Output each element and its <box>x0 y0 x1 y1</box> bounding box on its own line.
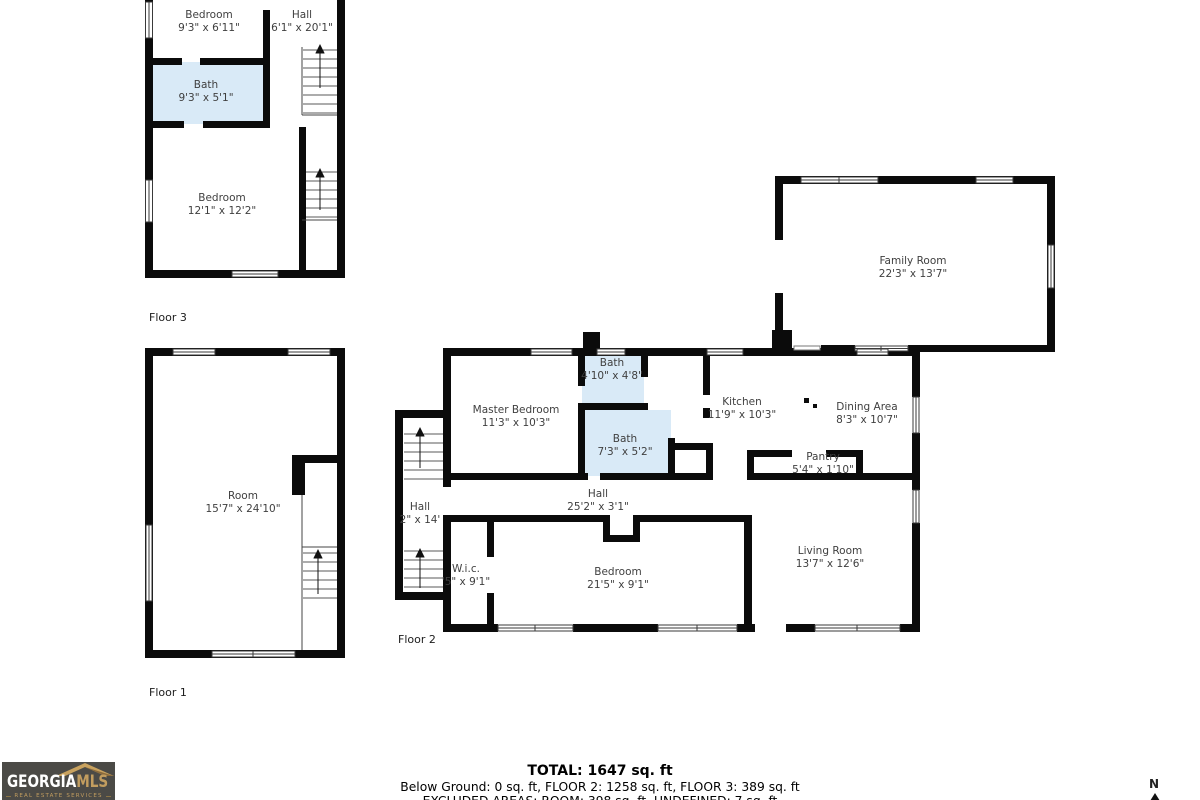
room-dims: 7'3" x 5'2" <box>597 446 652 459</box>
room-label-f2-wic: W.i.c. '5" x 9'1" <box>442 563 490 589</box>
room-label-f2-bath-mid: Bath 7'3" x 5'2" <box>597 433 652 459</box>
room-label-f2-bath-top: Bath 4'10" x 4'8" <box>581 357 643 383</box>
room-label-f2-hall-main: Hall 25'2" x 3'1" <box>567 488 629 514</box>
room-label-f2-hall-stairs: Hall 2" x 14' <box>400 501 441 527</box>
room-label-f3-bedroom-top: Bedroom 9'3" x 6'11" <box>178 9 240 35</box>
room-label-f2-living-room: Living Room 13'7" x 12'6" <box>796 545 864 571</box>
room-label-f2-pantry: Pantry 5'4" x 1'10" <box>792 451 854 477</box>
room-name: Bath <box>597 433 652 446</box>
logo-text-mls: MLS <box>76 772 108 792</box>
room-name: Bedroom <box>178 9 240 22</box>
room-dims: 11'9" x 10'3" <box>708 409 776 422</box>
summary-excluded-areas: EXCLUDED AREAS: ROOM: 398 sq. ft, UNDEFI… <box>0 794 1200 800</box>
room-name: Dining Area <box>836 401 898 414</box>
room-name: Family Room <box>879 255 947 268</box>
floorplan-drawing <box>0 0 1200 800</box>
room-name: Hall <box>271 9 333 22</box>
floor-label-2: Floor 2 <box>398 633 436 646</box>
room-name: Master Bedroom <box>473 404 560 417</box>
room-dims: 12'1" x 12'2" <box>188 205 256 218</box>
room-dims: 15'7" x 24'10" <box>205 503 280 516</box>
room-dims: 13'7" x 12'6" <box>796 558 864 571</box>
floor-label-1: Floor 1 <box>149 686 187 699</box>
tagline-rule-right <box>106 796 111 797</box>
room-dims: 9'3" x 5'1" <box>178 92 233 105</box>
logo-wordmark: GEORGIAMLS <box>7 772 108 792</box>
summary-floor-areas: Below Ground: 0 sq. ft, FLOOR 2: 1258 sq… <box>0 780 1200 794</box>
room-name: Bath <box>178 79 233 92</box>
room-label-f3-bath: Bath 9'3" x 5'1" <box>178 79 233 105</box>
summary-total: TOTAL: 1647 sq. ft <box>0 763 1200 779</box>
room-dims: 22'3" x 13'7" <box>879 268 947 281</box>
room-label-f2-master-bedroom: Master Bedroom 11'3" x 10'3" <box>473 404 560 430</box>
room-name: Living Room <box>796 545 864 558</box>
room-label-f1-room: Room 15'7" x 24'10" <box>205 490 280 516</box>
room-name: Hall <box>567 488 629 501</box>
room-label-f3-hall: Hall 6'1" x 20'1" <box>271 9 333 35</box>
room-dims: '5" x 9'1" <box>442 576 490 589</box>
room-label-f3-bedroom-main: Bedroom 12'1" x 12'2" <box>188 192 256 218</box>
room-dims: 5'4" x 1'10" <box>792 464 854 477</box>
room-name: Kitchen <box>708 396 776 409</box>
room-dims: 6'1" x 20'1" <box>271 22 333 35</box>
floor-label-3: Floor 3 <box>149 311 187 324</box>
logo-tagline: REAL ESTATE SERVICES <box>11 793 105 799</box>
north-indicator: N <box>1149 777 1159 791</box>
room-name: Room <box>205 490 280 503</box>
room-dims: 8'3" x 10'7" <box>836 414 898 427</box>
room-name: Bath <box>581 357 643 370</box>
room-dims: 25'2" x 3'1" <box>567 501 629 514</box>
room-name: Pantry <box>792 451 854 464</box>
room-name: Bedroom <box>188 192 256 205</box>
north-arrow-icon <box>1150 793 1160 800</box>
logo-text-georgia: GEORGIA <box>7 772 76 792</box>
room-name: Hall <box>400 501 441 514</box>
georgia-mls-logo: GEORGIAMLS REAL ESTATE SERVICES <box>2 762 115 800</box>
room-label-f2-bedroom: Bedroom 21'5" x 9'1" <box>587 566 649 592</box>
room-name: W.i.c. <box>442 563 490 576</box>
room-label-f2-kitchen: Kitchen 11'9" x 10'3" <box>708 396 776 422</box>
room-label-f2-dining-area: Dining Area 8'3" x 10'7" <box>836 401 898 427</box>
room-dims: 11'3" x 10'3" <box>473 417 560 430</box>
logo-tagline-row: REAL ESTATE SERVICES <box>6 793 111 799</box>
room-dims: 9'3" x 6'11" <box>178 22 240 35</box>
room-dims: 21'5" x 9'1" <box>587 579 649 592</box>
room-dims: 2" x 14' <box>400 514 441 527</box>
room-name: Bedroom <box>587 566 649 579</box>
floorplan-page: Bedroom 9'3" x 6'11" Hall 6'1" x 20'1" B… <box>0 0 1200 800</box>
room-label-f2-family-room: Family Room 22'3" x 13'7" <box>879 255 947 281</box>
room-dims: 4'10" x 4'8" <box>581 370 643 383</box>
